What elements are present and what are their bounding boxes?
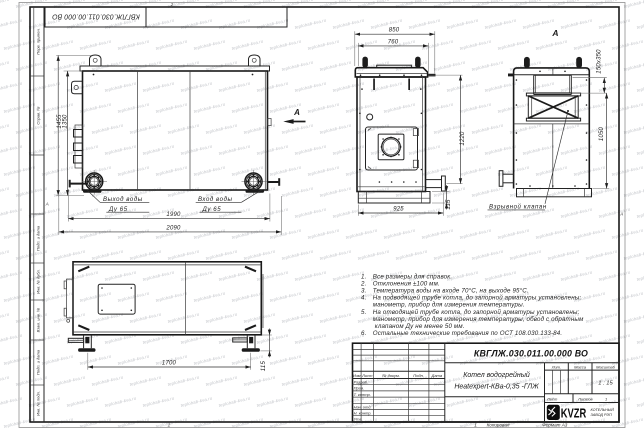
svg-text:1220: 1220 — [460, 131, 466, 146]
svg-text:2: 2 — [167, 423, 171, 428]
svg-text:2090: 2090 — [165, 225, 181, 231]
svg-text:Взрывной клапан: Взрывной клапан — [489, 203, 547, 210]
svg-text:Heatexpert-КВа-0,35 -ГЛЖ: Heatexpert-КВа-0,35 -ГЛЖ — [454, 384, 539, 391]
svg-text:1.: 1. — [361, 273, 366, 280]
svg-text:2.: 2. — [360, 280, 366, 287]
svg-text:Все размеры для справок.: Все размеры для справок. — [373, 273, 452, 280]
svg-text:Остальные технические требован: Остальные технические требования по ОСТ … — [373, 330, 562, 337]
svg-text:1 : 15: 1 : 15 — [598, 381, 613, 387]
svg-text:Лист: Лист — [546, 397, 558, 402]
svg-text:1700: 1700 — [162, 360, 177, 366]
svg-text:Дата: Дата — [431, 373, 443, 378]
svg-text:Подп. и дата: Подп. и дата — [36, 225, 41, 251]
svg-text:Масса: Масса — [574, 365, 587, 370]
svg-text:Температура воды на входе 70°С: Температура воды на входе 70°С, на выход… — [373, 288, 529, 295]
svg-text:На подводящей трубе котла, до: На подводящей трубе котла, до запорной а… — [373, 295, 582, 302]
svg-text:2: 2 — [170, 2, 174, 7]
svg-text:Н. контр.: Н. контр. — [354, 411, 372, 416]
svg-text:Отклонения ±100 мм.: Отклонения ±100 мм. — [373, 280, 440, 287]
svg-text:925: 925 — [393, 206, 404, 212]
svg-text:Нач. отд.: Нач. отд. — [354, 404, 372, 409]
svg-text:На отводящей трубе котла, до з: На отводящей трубе котла, до запорной ар… — [373, 309, 580, 316]
svg-text:Формат А3: Формат А3 — [542, 422, 568, 427]
svg-text:Пров.: Пров. — [354, 386, 365, 391]
svg-text:КОТЕЛЬНЫЙ: КОТЕЛЬНЫЙ — [591, 408, 615, 412]
svg-text:1: 1 — [474, 422, 477, 427]
svg-text:850: 850 — [389, 28, 400, 34]
svg-text:Вход воды: Вход воды — [198, 196, 233, 203]
svg-text:Изм: Изм — [353, 373, 361, 378]
svg-text:Лит.: Лит. — [551, 365, 561, 370]
svg-text:Котел водогрейный: Котел водогрейный — [463, 371, 530, 379]
svg-text:Ду 65: Ду 65 — [108, 206, 128, 213]
svg-text:1990: 1990 — [166, 212, 181, 218]
svg-text:Выход воды: Выход воды — [103, 196, 143, 203]
svg-text:1: 1 — [605, 397, 607, 402]
svg-text:КВГЛЖ.030.011.00.000 ВО: КВГЛЖ.030.011.00.000 ВО — [474, 348, 588, 358]
svg-text:А: А — [293, 108, 300, 117]
svg-text:клапаном Ду не менее 50 мм.: клапаном Ду не менее 50 мм. — [375, 323, 465, 330]
svg-text:Ду 65: Ду 65 — [202, 206, 222, 213]
svg-text:115: 115 — [261, 361, 267, 372]
svg-text:Справ. №: Справ. № — [36, 106, 41, 125]
svg-text:760: 760 — [388, 39, 399, 45]
svg-text:Подп. и дата: Подп. и дата — [36, 349, 41, 375]
svg-text:5.: 5. — [361, 309, 366, 316]
svg-text:KVZR: KVZR — [561, 405, 587, 420]
svg-text:Инв. № подл.: Инв. № подл. — [36, 391, 41, 416]
svg-text:6.: 6. — [361, 330, 366, 337]
svg-text:№ докум.: № докум. — [382, 373, 400, 378]
svg-text:Масштаб: Масштаб — [596, 365, 615, 370]
svg-text:А: А — [619, 212, 623, 217]
svg-text:4.: 4. — [361, 295, 366, 302]
svg-text:Разраб.: Разраб. — [354, 380, 368, 385]
svg-text:манометр, прибор для измерения: манометр, прибор для измерения температу… — [373, 316, 584, 323]
svg-text:А: А — [45, 202, 49, 207]
svg-text:3.: 3. — [361, 288, 366, 295]
svg-text:Перв. примен.: Перв. примен. — [36, 28, 41, 55]
svg-text:150х350: 150х350 — [596, 49, 602, 74]
svg-text:Копировал: Копировал — [487, 422, 510, 427]
svg-text:А: А — [551, 28, 558, 38]
svg-text:Утв.: Утв. — [354, 417, 363, 422]
svg-text:1350: 1350 — [62, 114, 68, 129]
svg-text:Инв. № дубл.: Инв. № дубл. — [36, 269, 41, 294]
svg-text:Лист: Лист — [361, 373, 373, 378]
svg-text:Взам. инв. №: Взам. инв. № — [36, 307, 41, 332]
svg-text:1050: 1050 — [599, 126, 605, 141]
svg-text:КВГЛЖ.030.011.00.000 ВО: КВГЛЖ.030.011.00.000 ВО — [52, 13, 140, 20]
svg-text:115: 115 — [446, 199, 452, 210]
svg-text:манометр, прибор для измерения: манометр, прибор для измерения температу… — [373, 302, 525, 309]
svg-text:Листов: Листов — [577, 397, 593, 402]
svg-text:ЗАВОД РЭП: ЗАВОД РЭП — [591, 413, 612, 417]
svg-text:Т. контр.: Т. контр. — [354, 392, 371, 397]
svg-text:Подп.: Подп. — [413, 373, 424, 378]
